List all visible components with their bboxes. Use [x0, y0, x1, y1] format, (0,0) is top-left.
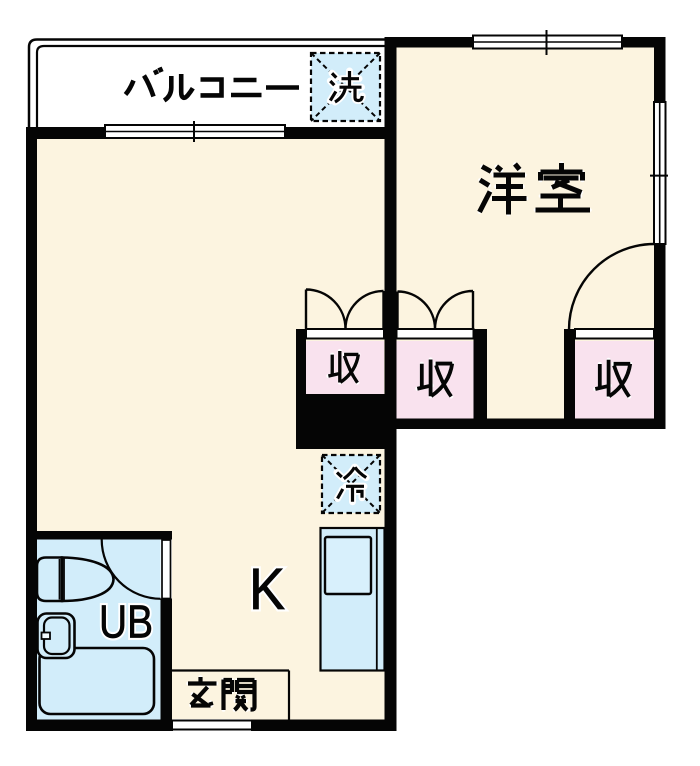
svg-text:K: K: [249, 557, 285, 622]
svg-text:UB: UB: [99, 596, 153, 648]
